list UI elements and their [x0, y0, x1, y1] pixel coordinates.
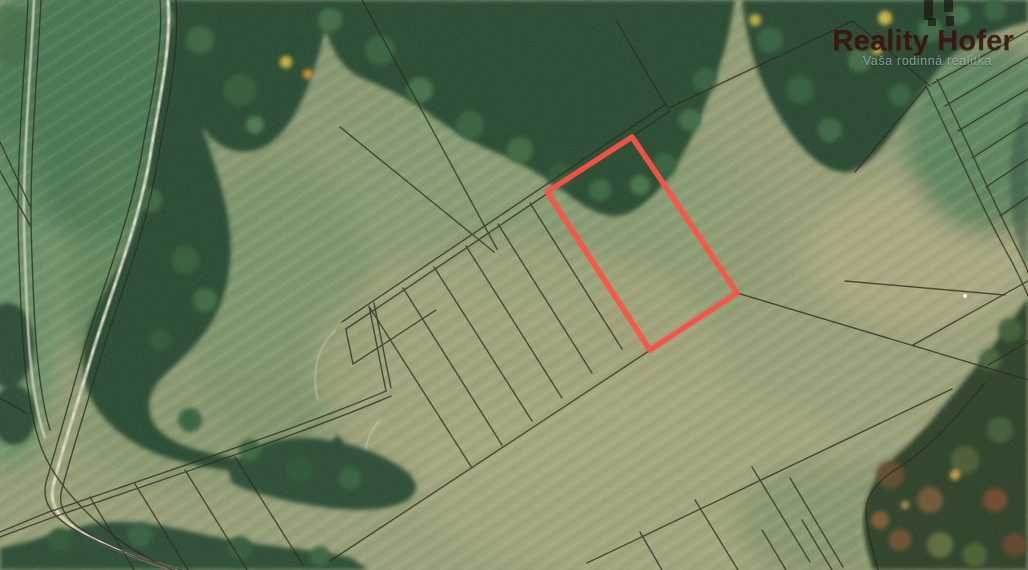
watermark-tagline: Vaša rodinná realitka: [863, 54, 992, 68]
aerial-listing-image: Reality Hofer Vaša rodinná realitka: [0, 0, 1028, 570]
aerial-map: [0, 0, 1028, 570]
watermark: Reality Hofer Vaša rodinná realitka: [778, 0, 1028, 84]
map-speck: [963, 294, 967, 298]
